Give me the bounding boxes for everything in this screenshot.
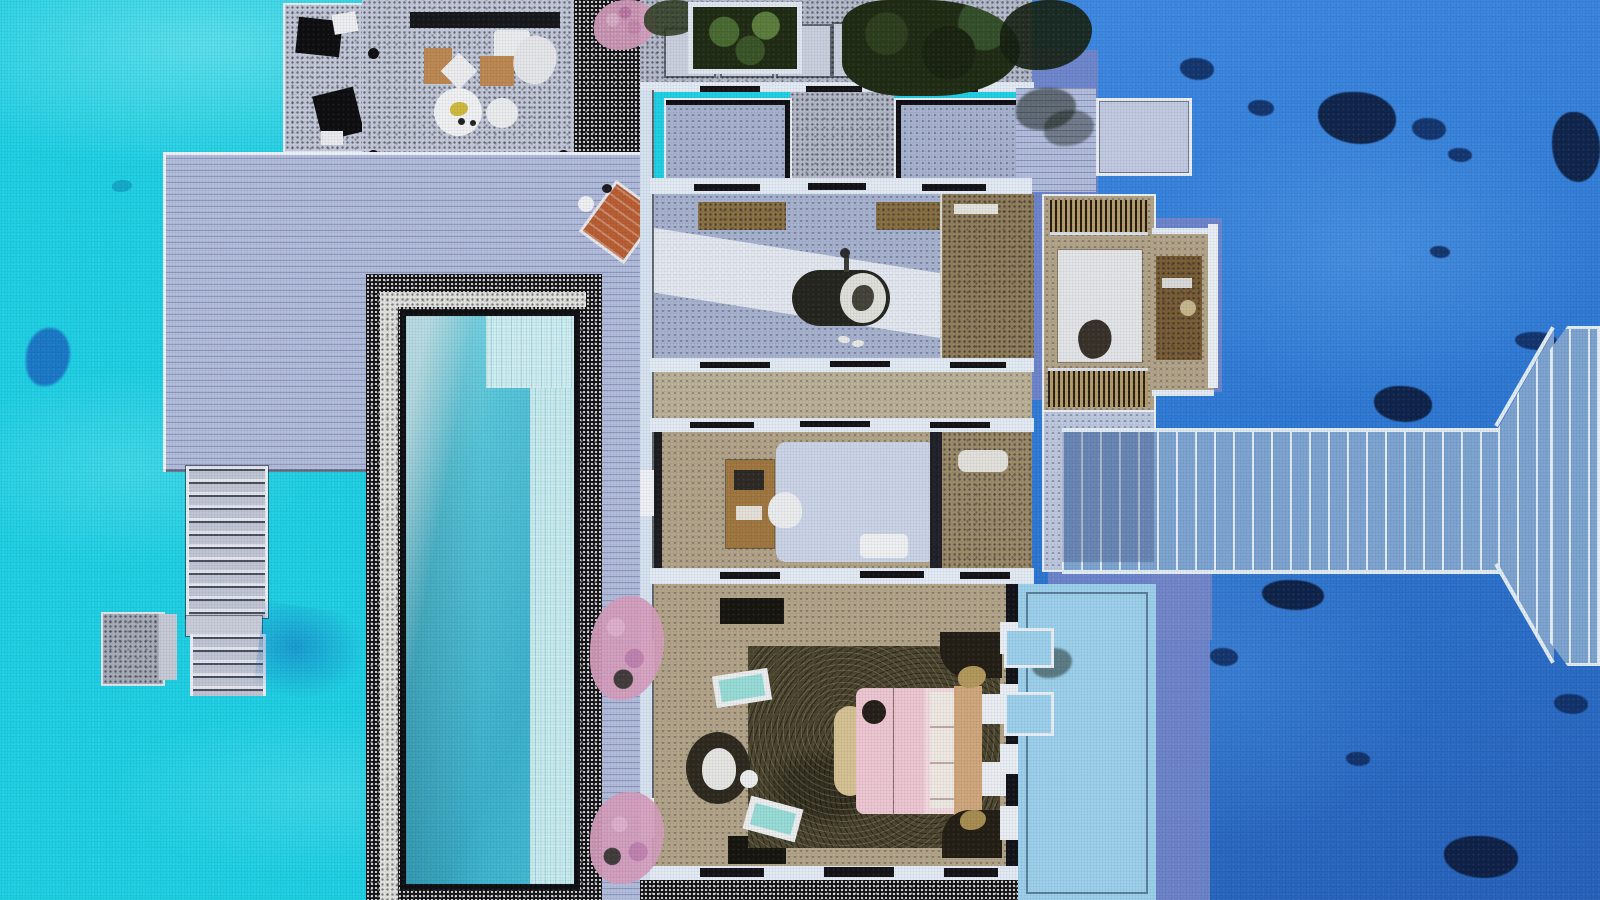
slipper [852, 339, 865, 347]
pergola-lounge-deck [362, 0, 578, 166]
canopy-shadow [1044, 110, 1094, 146]
desk-chair [768, 492, 802, 528]
freestanding-bathtub [792, 270, 890, 326]
tanning-ledge-corner [486, 316, 574, 388]
wall-shadow-segment [860, 571, 924, 578]
table-dark-plate [470, 120, 476, 126]
floating-sunbed-pad [283, 3, 367, 153]
alcove-east-wall [1208, 224, 1218, 388]
study-lounge [654, 432, 930, 568]
deck-plant-pot [602, 184, 612, 193]
double-vanity-west [698, 202, 786, 230]
daybed-pillow [860, 534, 908, 558]
writing-desk [726, 460, 774, 548]
stair-shadow [252, 601, 368, 705]
wardrobe-north [1050, 200, 1148, 235]
jetty-shaded-segment [1062, 432, 1154, 562]
egg-chair-cushion [702, 748, 736, 790]
sundeck-shadow-east [1152, 565, 1210, 900]
northeast-court [1016, 88, 1096, 192]
coral-patch [1248, 100, 1274, 116]
wall-shadow-segment [830, 361, 890, 367]
wall-shadow-segment [960, 572, 1010, 579]
pillows [930, 692, 954, 808]
jetty-walkway [1062, 428, 1502, 574]
bathroom [654, 194, 940, 360]
stairs-to-water-upper [186, 466, 268, 618]
tanning-ledge [530, 316, 574, 884]
arrival-platform [1550, 326, 1600, 666]
bath-faucet-head [840, 248, 850, 258]
bedroom [654, 584, 1006, 866]
slipper [837, 335, 850, 344]
hanging-egg-chair [686, 732, 750, 804]
wall-shadow-segment [950, 362, 1006, 368]
dressing-room [1042, 194, 1156, 414]
table-dark-plate [458, 118, 465, 125]
wall-shadow-segment [808, 183, 866, 190]
sun-deck-step [1004, 628, 1054, 668]
entry-vestibule-west [664, 98, 792, 182]
lap-pool-water [406, 316, 574, 884]
coral-patch [1210, 648, 1238, 666]
dining-chair [486, 98, 518, 128]
tree-canopy [842, 0, 1020, 96]
side-table-round [578, 196, 594, 212]
sofa-cushion-tan [480, 56, 514, 86]
swim-platform [101, 612, 165, 686]
sunbed-pillow [321, 131, 343, 145]
wardrobe-south [1048, 368, 1148, 407]
coral-patch [1554, 694, 1588, 714]
outdoor-sofa-back [410, 12, 560, 28]
wall-shadow-segment [922, 184, 986, 191]
stone-shower [940, 194, 1034, 360]
desk-papers [736, 506, 762, 520]
pool-surround-white-band-top [380, 292, 586, 307]
wall-shadow-segment [700, 86, 760, 92]
coral-patch [1448, 148, 1472, 162]
entry-vestibule-east [894, 98, 1018, 182]
wall-shadow-segment [800, 421, 870, 427]
aqua-stool-cushion [719, 674, 766, 703]
vanity-tray [1162, 278, 1192, 288]
wall-shadow-segment [690, 422, 754, 428]
stairs-landing [186, 616, 262, 636]
coral-patch [1430, 246, 1450, 258]
media-wall [654, 432, 662, 568]
bed-deco-pillow [862, 700, 886, 724]
green-planter [688, 2, 802, 74]
aerial-villa-floorplan [0, 0, 1600, 900]
west-wall-door [640, 470, 654, 516]
south-shadow-band [640, 880, 1034, 900]
pool-surround-white-band-left [380, 292, 398, 900]
pergola-post [368, 48, 379, 59]
water-closet [942, 432, 1032, 568]
headboard [954, 686, 982, 818]
wall-shadow-segment [700, 868, 764, 877]
closet-north [720, 598, 784, 624]
double-vanity-east [876, 202, 940, 230]
wall-shadow-segment [694, 184, 760, 191]
shower-towel [954, 204, 998, 214]
aqua-stool-cushion [750, 803, 796, 835]
wall-shadow-segment [700, 362, 770, 368]
wall-shadow-segment [930, 422, 990, 428]
coral-patch [1412, 118, 1446, 140]
wc-fixture [958, 450, 1008, 472]
vanity-alcove [1152, 228, 1214, 396]
study-divider-wall [930, 432, 942, 568]
wall-shadow-segment [720, 572, 780, 579]
northeast-balcony [1096, 98, 1192, 176]
laptop [734, 470, 764, 490]
coral-patch [1346, 752, 1370, 766]
wall-shadow-segment [824, 867, 894, 877]
vanity-stool [1180, 300, 1196, 316]
sunbed-pillow [331, 11, 358, 35]
corridor [654, 372, 1032, 420]
coral-patch [1180, 58, 1214, 80]
wall-shadow-segment [944, 868, 998, 877]
side-table-round [740, 770, 758, 788]
sun-deck-step [1004, 692, 1054, 736]
swim-platform-step [159, 614, 177, 680]
